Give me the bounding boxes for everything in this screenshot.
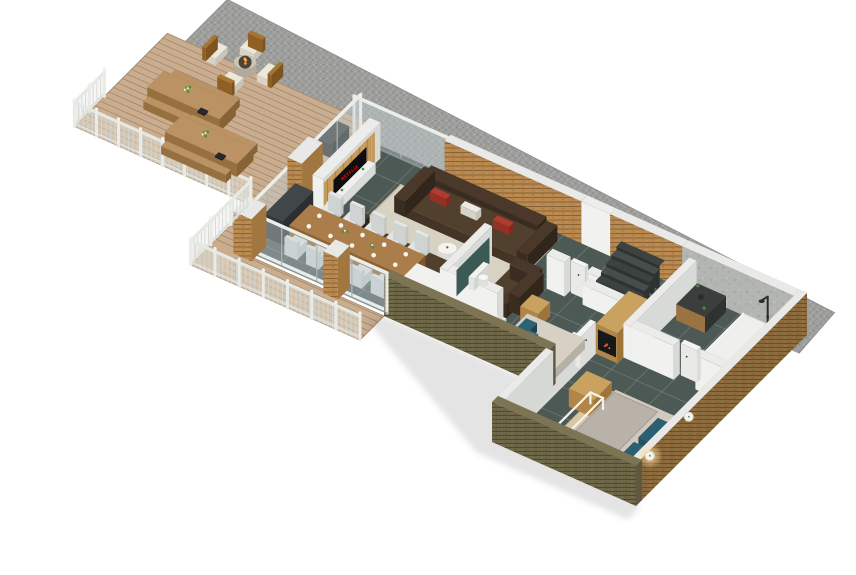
floorplan-figure: 3D isometric floor plan render: house wi… [0,0,856,575]
master-sconce-2-center [649,455,651,457]
brick-pillar-mid [323,239,349,299]
fire-pit-flame-core [244,59,246,61]
bathroom-door [681,340,701,383]
floorplan-scene-svg: 3D isometric floor plan render: house wi… [0,0,856,575]
master-sconce-1-center [688,416,690,418]
hall-south-wall-a [547,249,571,297]
wc-toilet [478,274,488,287]
floorplan-render-stage: 3D isometric floor plan render: house wi… [0,0,856,575]
scene-layers: NETFLIX [73,0,835,520]
vanity-basin [698,294,704,300]
coffee-table-decor [446,246,448,248]
tv-shelf-decor [352,179,354,181]
